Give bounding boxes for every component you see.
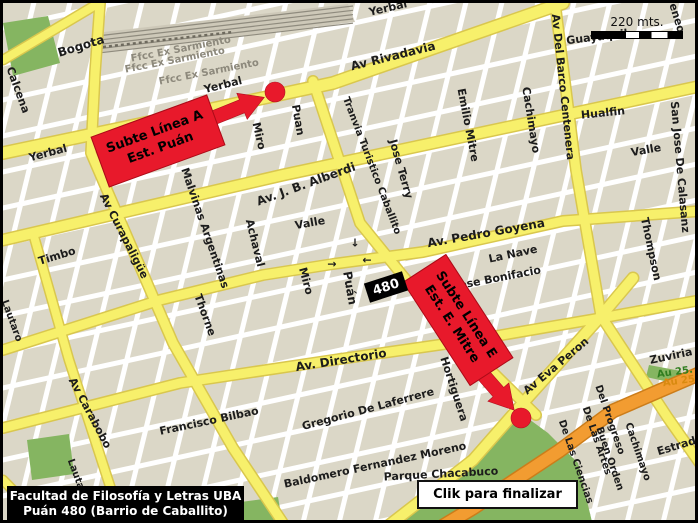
map-scale: 220 mts. (591, 15, 683, 39)
info-box-line1: Facultad de Filosofía y Letras UBA (7, 489, 244, 503)
minor-street (85, 3, 215, 523)
minor-street (157, 3, 287, 523)
subte-e-station-dot[interactable] (511, 408, 531, 428)
map-base-layer (3, 3, 698, 523)
info-box: Facultad de Filosofía y Letras UBA Puán … (7, 486, 244, 521)
scale-bar (591, 31, 683, 39)
scale-label: 220 mts. (591, 15, 683, 29)
finish-button[interactable]: Clik para finalizar (417, 480, 578, 509)
subte-a-station-dot[interactable] (265, 82, 285, 102)
info-box-line2: Puán 480 (Barrio de Caballito) (7, 504, 244, 518)
park (27, 434, 74, 480)
map-frame: BogotaFfcc Ex SarmientoFfcc Ex Sarmiento… (0, 0, 698, 523)
map-canvas[interactable] (3, 3, 698, 523)
